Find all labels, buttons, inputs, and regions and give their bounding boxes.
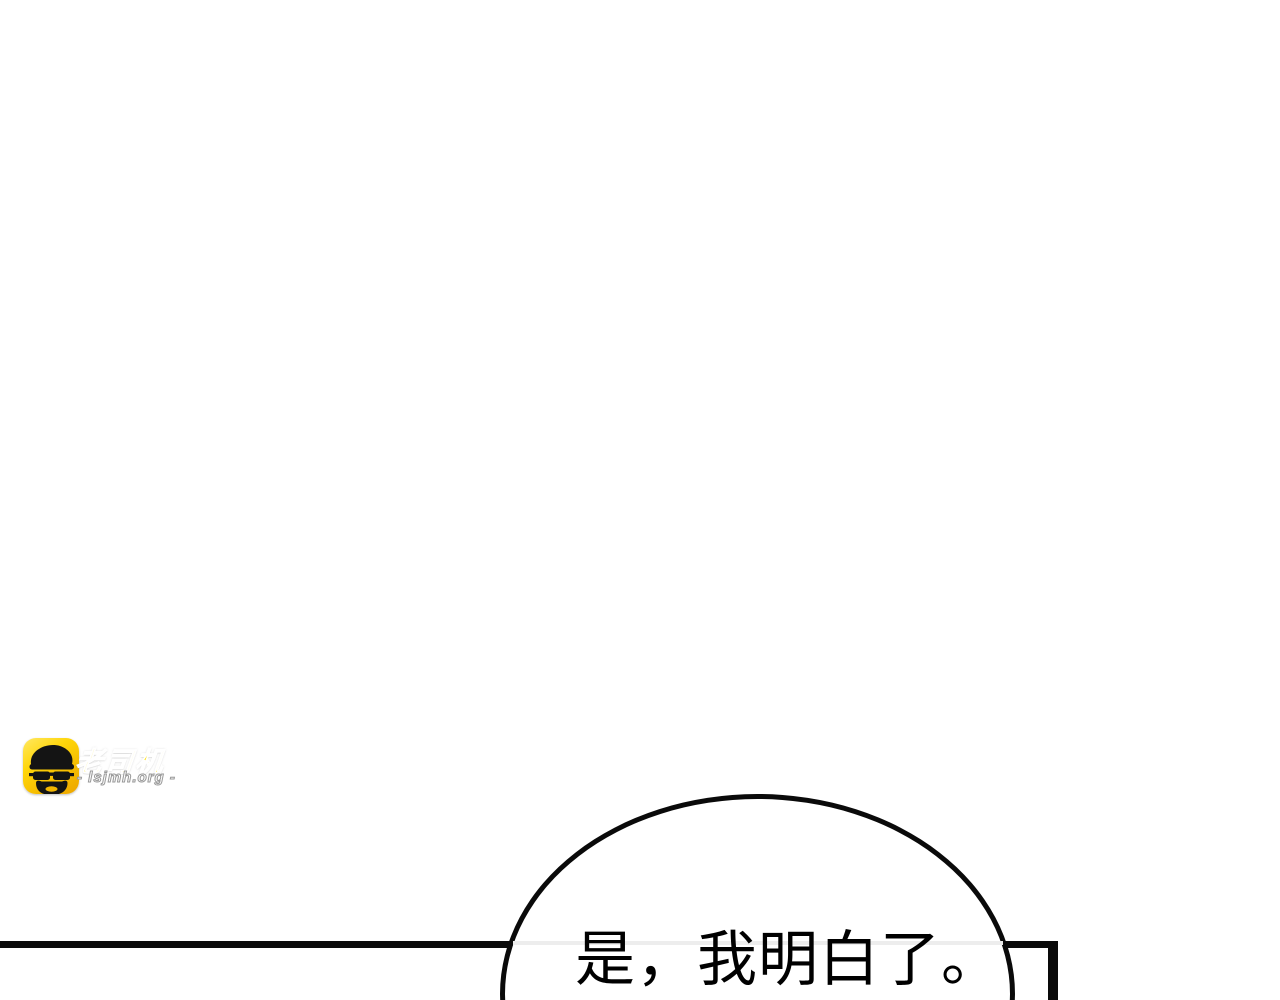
speech-bubble-text: 是，我明白了。 (531, 929, 1046, 991)
watermark-url-text: - lsjmh.org - (77, 769, 176, 786)
driver-face-icon (23, 738, 79, 794)
site-watermark: 老司机 - lsjmh.org - (0, 730, 220, 800)
panel-border-right (1048, 941, 1058, 1000)
driver-face-art (23, 738, 79, 794)
